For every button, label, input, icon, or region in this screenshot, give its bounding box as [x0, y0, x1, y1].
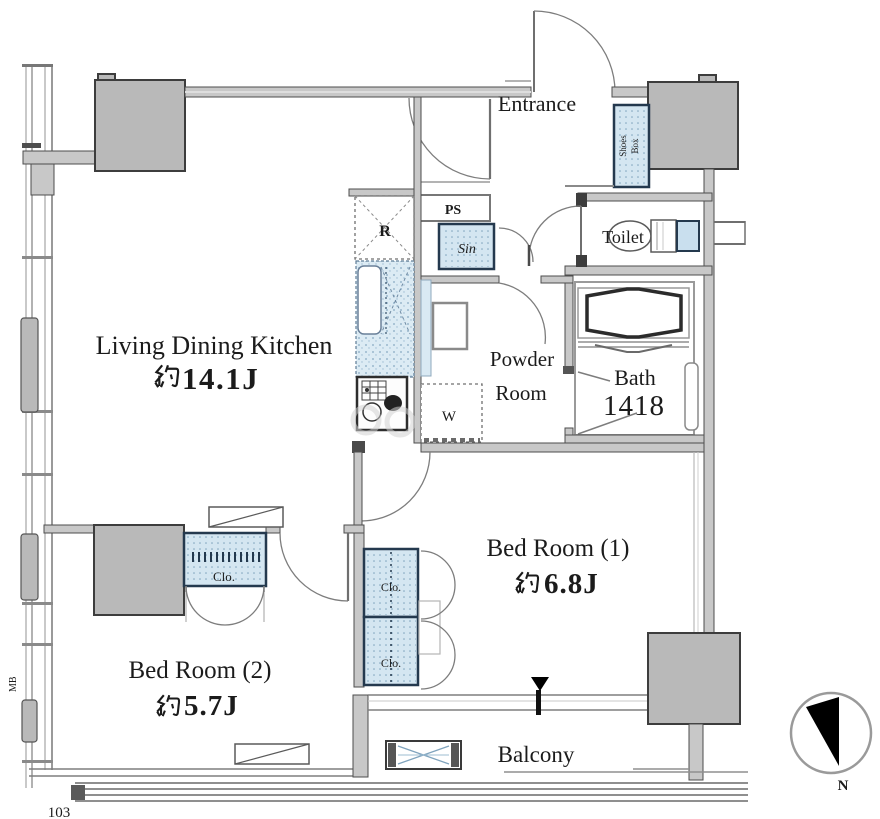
svg-text:Bed Room (2): Bed Room (2) — [128, 657, 271, 684]
svg-text:Clo.: Clo. — [381, 580, 401, 594]
svg-text:R: R — [379, 223, 391, 240]
svg-text:MB: MB — [8, 676, 19, 692]
svg-text:PS: PS — [445, 203, 462, 218]
svg-text:Room: Room — [495, 381, 546, 405]
svg-text:Powder: Powder — [490, 347, 554, 371]
svg-text:Shoes: Shoes — [618, 135, 628, 157]
svg-text:W: W — [442, 409, 457, 425]
svg-text:Toilet: Toilet — [602, 227, 644, 247]
svg-text:14.1J: 14.1J — [182, 361, 259, 396]
svg-text:Bath: Bath — [614, 365, 656, 390]
svg-text:103: 103 — [48, 805, 71, 819]
svg-text:6.8J: 6.8J — [544, 568, 599, 600]
svg-text:Living Dining Kitchen: Living Dining Kitchen — [96, 331, 333, 360]
svg-text:N: N — [838, 778, 849, 794]
svg-text:Entrance: Entrance — [498, 91, 576, 116]
svg-text:Clo.: Clo. — [381, 656, 401, 670]
svg-text:1418: 1418 — [603, 390, 665, 422]
svg-text:5.7J: 5.7J — [184, 690, 239, 722]
svg-text:Bed Room (1): Bed Room (1) — [486, 535, 629, 562]
svg-text:Balcony: Balcony — [498, 742, 575, 767]
svg-text:Box: Box — [630, 138, 640, 154]
svg-text:Sin: Sin — [458, 242, 476, 257]
svg-text:Clo.: Clo. — [213, 569, 235, 584]
